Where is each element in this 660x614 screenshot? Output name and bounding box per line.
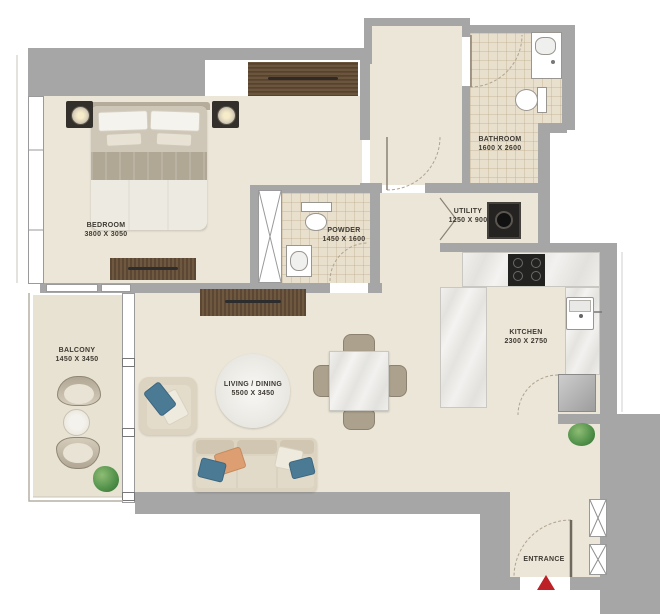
cooktop-burner-3 xyxy=(513,271,523,281)
wall-utility-top xyxy=(425,183,550,193)
bathroom-label: BATHROOM 1600 X 2600 xyxy=(478,135,521,153)
balcony-plant-icon xyxy=(93,466,119,492)
utility-dims: 1250 X 900 xyxy=(449,216,488,225)
bed-pillow-left xyxy=(98,110,149,132)
lamp-right-icon xyxy=(217,106,236,125)
kitchen-dims: 2300 X 2750 xyxy=(504,337,547,346)
bedroom-west-window-band xyxy=(28,96,44,284)
shaft-box-2 xyxy=(589,544,607,575)
bathroom-toilet-tank xyxy=(537,87,547,113)
sofa-back-cushion-2 xyxy=(237,440,277,454)
sliding-door-stop-2 xyxy=(122,428,135,437)
bathroom-dims: 1600 X 2600 xyxy=(478,144,521,153)
bedroom-dims: 3800 X 3050 xyxy=(84,230,127,239)
closet-box xyxy=(258,190,282,283)
living-dining-dims: 5500 X 3450 xyxy=(224,389,282,398)
balcony-chair-bottom-seat xyxy=(63,443,93,463)
bathroom-name: BATHROOM xyxy=(478,135,521,144)
hallway-floor-upper xyxy=(370,26,462,185)
balcony-chair-top-seat xyxy=(64,384,94,404)
wall-bathroom-step xyxy=(538,123,567,133)
wall-utility-east xyxy=(538,183,550,243)
wall-entrance-west xyxy=(480,492,510,590)
wall-bathroom-east-lower xyxy=(538,133,550,183)
kitchen-name: KITCHEN xyxy=(504,328,547,337)
powder-toilet-tank xyxy=(301,202,332,212)
sliding-door-stop-3 xyxy=(122,492,135,501)
wardrobe-handle xyxy=(268,77,338,80)
kitchen-sink-basin xyxy=(569,300,591,312)
wall-east-mass xyxy=(600,414,660,614)
wall-kitchen-top xyxy=(440,243,617,252)
living-console-handle xyxy=(225,300,281,303)
cooktop-burner-4 xyxy=(531,271,541,281)
balcony-name: BALCONY xyxy=(55,346,98,355)
dining-table xyxy=(329,351,389,411)
wall-powder-west xyxy=(250,193,258,293)
shaft-box-1 xyxy=(589,499,607,537)
balcony-dims: 1450 X 3450 xyxy=(55,355,98,364)
floor-plan: BEDROOM 3800 X 3050 BATHROOM 1600 X 2600… xyxy=(0,0,660,614)
dining-chair-right xyxy=(387,365,407,397)
entrance-arrow-icon xyxy=(537,575,555,590)
kitchen-island xyxy=(440,287,487,408)
entrance-name: ENTRANCE xyxy=(523,555,564,564)
refrigerator xyxy=(558,374,596,412)
bed-cushion-left xyxy=(106,132,143,147)
entrance-label: ENTRANCE xyxy=(523,555,564,564)
bedroom-window-left xyxy=(46,284,98,292)
balcony-sliding-door-band xyxy=(122,293,135,503)
wall-top-left-block xyxy=(28,48,208,96)
bathroom-basin xyxy=(535,37,556,55)
bathroom-toilet-bowl xyxy=(515,89,538,111)
bedroom-label: BEDROOM 3800 X 3050 xyxy=(84,221,127,239)
powder-label: POWDER 1450 X 1600 xyxy=(322,226,365,244)
living-dining-name: LIVING / DINING xyxy=(224,380,282,389)
wall-powder-south-stub xyxy=(368,283,382,293)
entrance-plant-icon xyxy=(568,423,595,446)
cooktop-burner-1 xyxy=(513,258,523,268)
utility-label: UTILITY 1250 X 900 xyxy=(449,207,488,225)
wall-kitchen-east xyxy=(600,243,617,417)
wall-entrance-south-right xyxy=(570,577,602,590)
cooktop-burner-2 xyxy=(531,258,541,268)
bedroom-name: BEDROOM xyxy=(84,221,127,230)
balcony-table xyxy=(63,409,90,436)
wall-bedroom-east xyxy=(360,60,370,140)
wall-bathroom-east xyxy=(562,25,575,130)
wall-notch-top xyxy=(364,18,470,26)
powder-sink-basin xyxy=(290,251,308,271)
hallway-floor-lower xyxy=(380,193,440,293)
wall-bathroom-west-lower xyxy=(462,86,470,190)
wall-bathroom-west-upper xyxy=(462,25,470,37)
lamp-left-icon xyxy=(71,106,90,125)
wall-powder-east xyxy=(370,193,380,293)
bathroom-floor-lower xyxy=(470,123,538,183)
living-dining-label: LIVING / DINING 5500 X 3450 xyxy=(224,380,282,398)
powder-dims: 1450 X 1600 xyxy=(322,235,365,244)
bed-blanket xyxy=(91,152,207,180)
balcony-label: BALCONY 1450 X 3450 xyxy=(55,346,98,364)
bed-pillow-right xyxy=(150,110,201,132)
bathroom-tap-icon xyxy=(551,60,555,64)
bedroom-window-right xyxy=(101,284,131,292)
washing-machine-drum-icon xyxy=(495,211,513,229)
kitchen-faucet-icon xyxy=(579,314,583,318)
powder-name: POWDER xyxy=(322,226,365,235)
wall-living-south xyxy=(135,492,480,514)
bed-cushion-right xyxy=(156,132,193,147)
bedroom-dresser-handle xyxy=(128,267,178,270)
kitchen-label: KITCHEN 2300 X 2750 xyxy=(504,328,547,346)
utility-name: UTILITY xyxy=(449,207,488,216)
wall-notch-left xyxy=(364,18,372,64)
sliding-door-stop-1 xyxy=(122,358,135,367)
dining-chair-bottom xyxy=(343,410,375,430)
